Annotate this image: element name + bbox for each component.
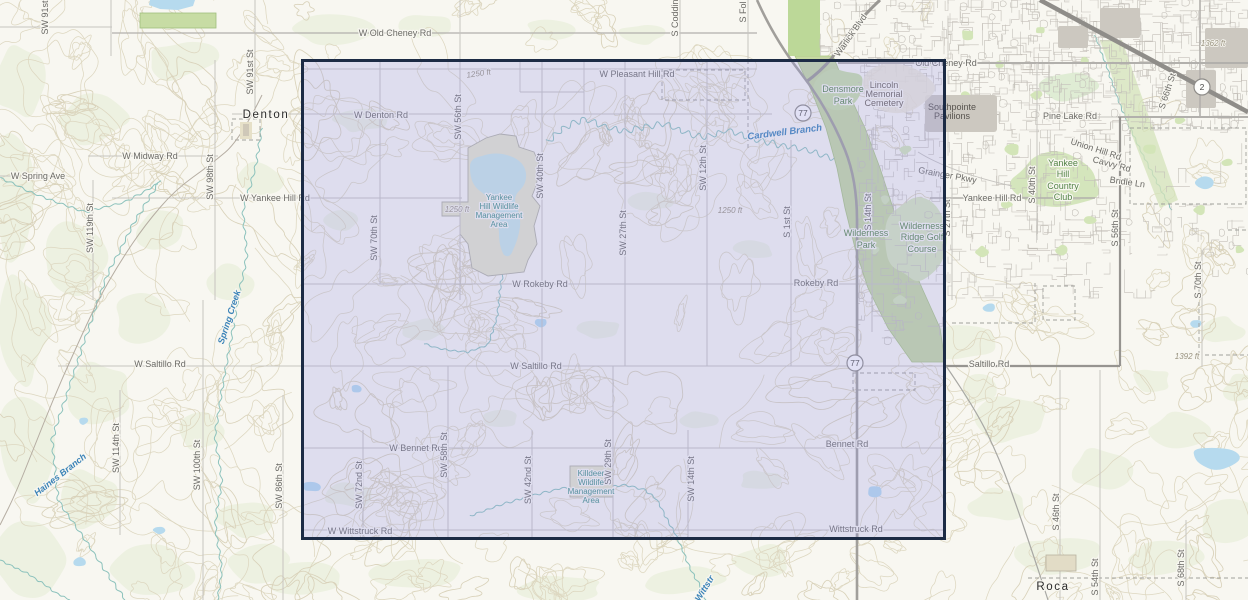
svg-text:SW 119th St: SW 119th St: [85, 203, 95, 253]
svg-text:S 56th St: S 56th St: [1110, 209, 1120, 247]
svg-text:SW 98th St: SW 98th St: [205, 154, 215, 200]
svg-text:Roca: Roca: [1036, 581, 1069, 593]
svg-text:W Midway Rd: W Midway Rd: [122, 151, 178, 161]
svg-text:S 46th St: S 46th St: [1051, 493, 1061, 531]
svg-text:SW 91st St: SW 91st St: [245, 49, 255, 95]
svg-text:W Saltillo Rd: W Saltillo Rd: [134, 359, 186, 369]
svg-text:SW 86th St: SW 86th St: [274, 463, 284, 509]
svg-text:S 70th St: S 70th St: [1193, 261, 1203, 299]
svg-text:2: 2: [1200, 82, 1205, 92]
svg-text:SW 114th St: SW 114th St: [111, 423, 121, 473]
svg-text:Yankee Hill Rd: Yankee Hill Rd: [963, 193, 1022, 203]
svg-text:S 68th St: S 68th St: [1176, 549, 1186, 587]
svg-text:1362 ft: 1362 ft: [1201, 39, 1226, 48]
svg-text:W Yankee Hill Rd: W Yankee Hill Rd: [240, 193, 310, 203]
svg-text:SW 91st St: SW 91st St: [40, 0, 50, 35]
svg-text:Pine Lake Rd: Pine Lake Rd: [1043, 111, 1097, 121]
svg-text:S 40th St: S 40th St: [1027, 166, 1037, 204]
svg-text:W Old Cheney Rd: W Old Cheney Rd: [359, 28, 432, 38]
svg-text:S Fol: S Fol: [738, 1, 748, 22]
svg-text:SW 100th St: SW 100th St: [192, 439, 202, 490]
svg-text:S Coddin: S Coddin: [670, 0, 680, 37]
svg-text:W Spring Ave: W Spring Ave: [11, 171, 65, 181]
svg-text:Country: Country: [1047, 181, 1079, 191]
svg-text:Saltillo Rd: Saltillo Rd: [969, 359, 1010, 369]
svg-text:Club: Club: [1054, 192, 1073, 202]
svg-text:S 54th St: S 54th St: [1090, 558, 1100, 596]
svg-text:Hill: Hill: [1057, 169, 1070, 179]
svg-text:1392 ft: 1392 ft: [1175, 352, 1200, 361]
svg-text:Yankee: Yankee: [1048, 158, 1078, 168]
svg-text:Denton: Denton: [243, 109, 290, 121]
